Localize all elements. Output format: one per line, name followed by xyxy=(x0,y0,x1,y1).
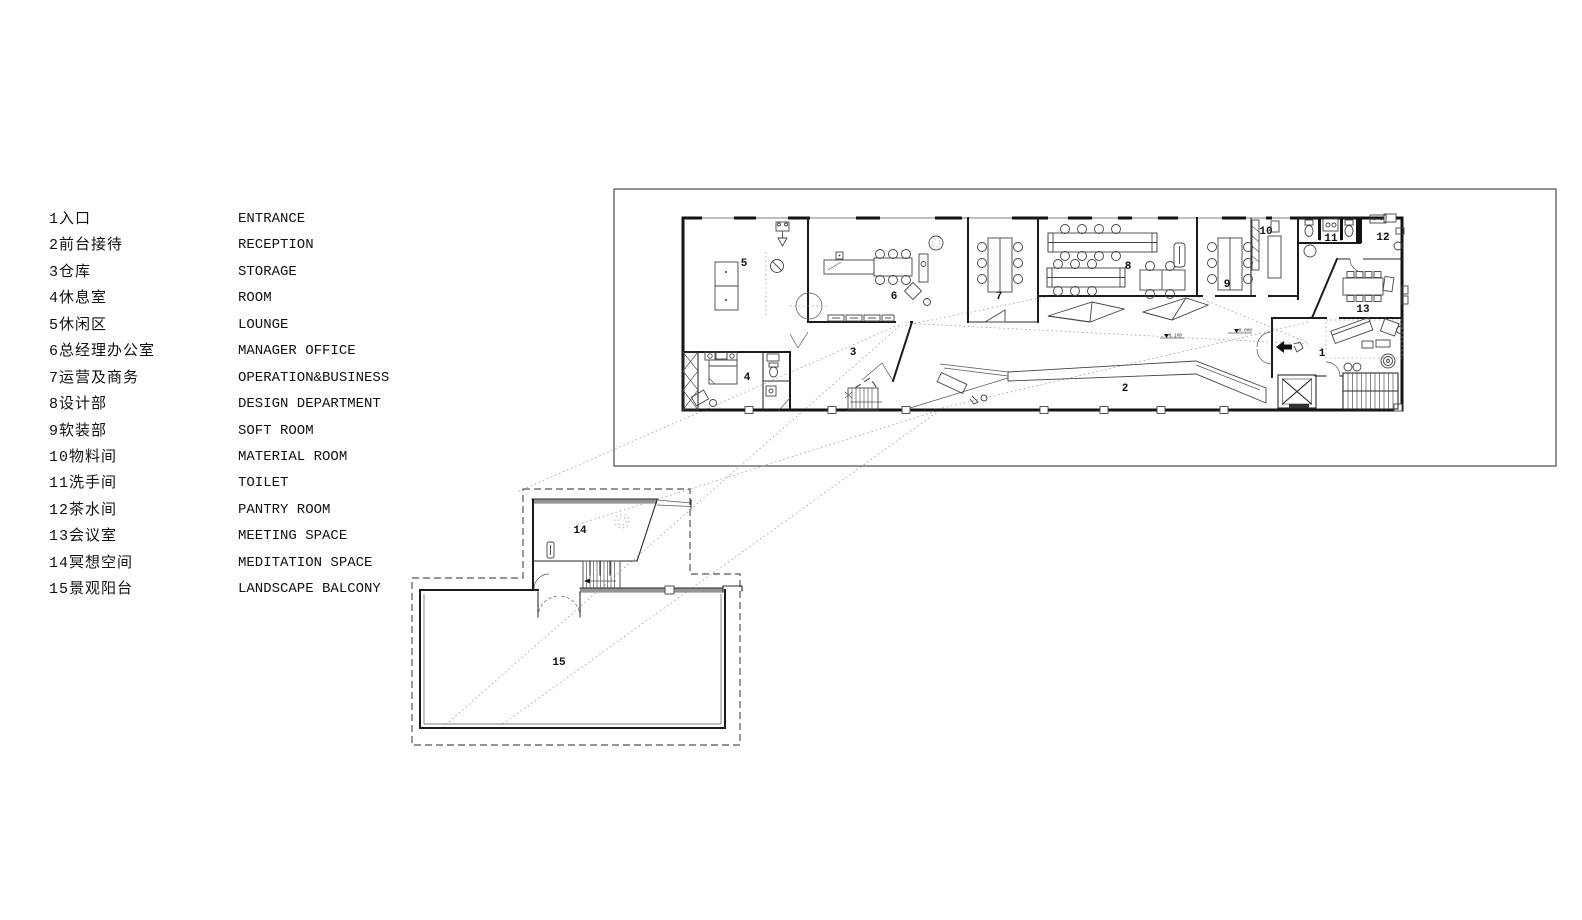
room-label-4: 4 xyxy=(744,372,751,384)
storage-stair xyxy=(845,378,882,410)
room-labels: 1 2 3 4 5 6 7 8 9 10 11 12 13 14 15 xyxy=(552,226,1389,669)
room-1-entrance xyxy=(1276,318,1404,371)
ceiling-fixture-icon xyxy=(776,222,789,246)
room-label-9: 9 xyxy=(1224,279,1231,291)
floor-plan-canvas: -0.100 ±0.000 xyxy=(0,0,1582,920)
room-label-10: 10 xyxy=(1259,226,1272,238)
room-label-15: 15 xyxy=(552,657,566,669)
room-label-2: 2 xyxy=(1122,383,1129,395)
bathroom-fixtures xyxy=(766,354,790,410)
room-5-lounge xyxy=(715,222,828,319)
floor-plan-sheet: 1入口ENTRANCE 2前台接待RECEPTION 3仓库STORAGE 4休… xyxy=(0,0,1582,920)
plan-frame xyxy=(614,189,1556,466)
room-label-13: 13 xyxy=(1356,304,1370,316)
double-door xyxy=(538,592,580,617)
room-label-6: 6 xyxy=(891,291,898,303)
room-label-8: 8 xyxy=(1125,261,1132,273)
room-8-design xyxy=(1047,225,1185,299)
room-label-11: 11 xyxy=(1324,233,1338,245)
level-text-zero: ±0.000 xyxy=(1236,328,1253,334)
room-label-1: 1 xyxy=(1319,348,1326,360)
annex-stair xyxy=(583,561,620,589)
room-label-3: 3 xyxy=(850,347,857,359)
room-13-meeting xyxy=(1343,272,1394,302)
level-markers: -0.100 ±0.000 xyxy=(1160,328,1252,339)
room-label-7: 7 xyxy=(996,291,1003,303)
interior-partitions xyxy=(683,218,1408,410)
room-label-5: 5 xyxy=(741,258,748,270)
projection-lines xyxy=(443,296,1309,727)
shaft-hatch xyxy=(683,352,698,410)
room-6-manager-office xyxy=(824,236,943,321)
level-text-low: -0.100 xyxy=(1166,333,1183,339)
room-label-14: 14 xyxy=(573,525,587,537)
main-staircase xyxy=(1343,373,1398,409)
reception-desk xyxy=(910,361,1266,408)
elevator xyxy=(1278,375,1316,408)
corridor-planters xyxy=(1048,298,1208,322)
room-label-12: 12 xyxy=(1376,232,1389,244)
